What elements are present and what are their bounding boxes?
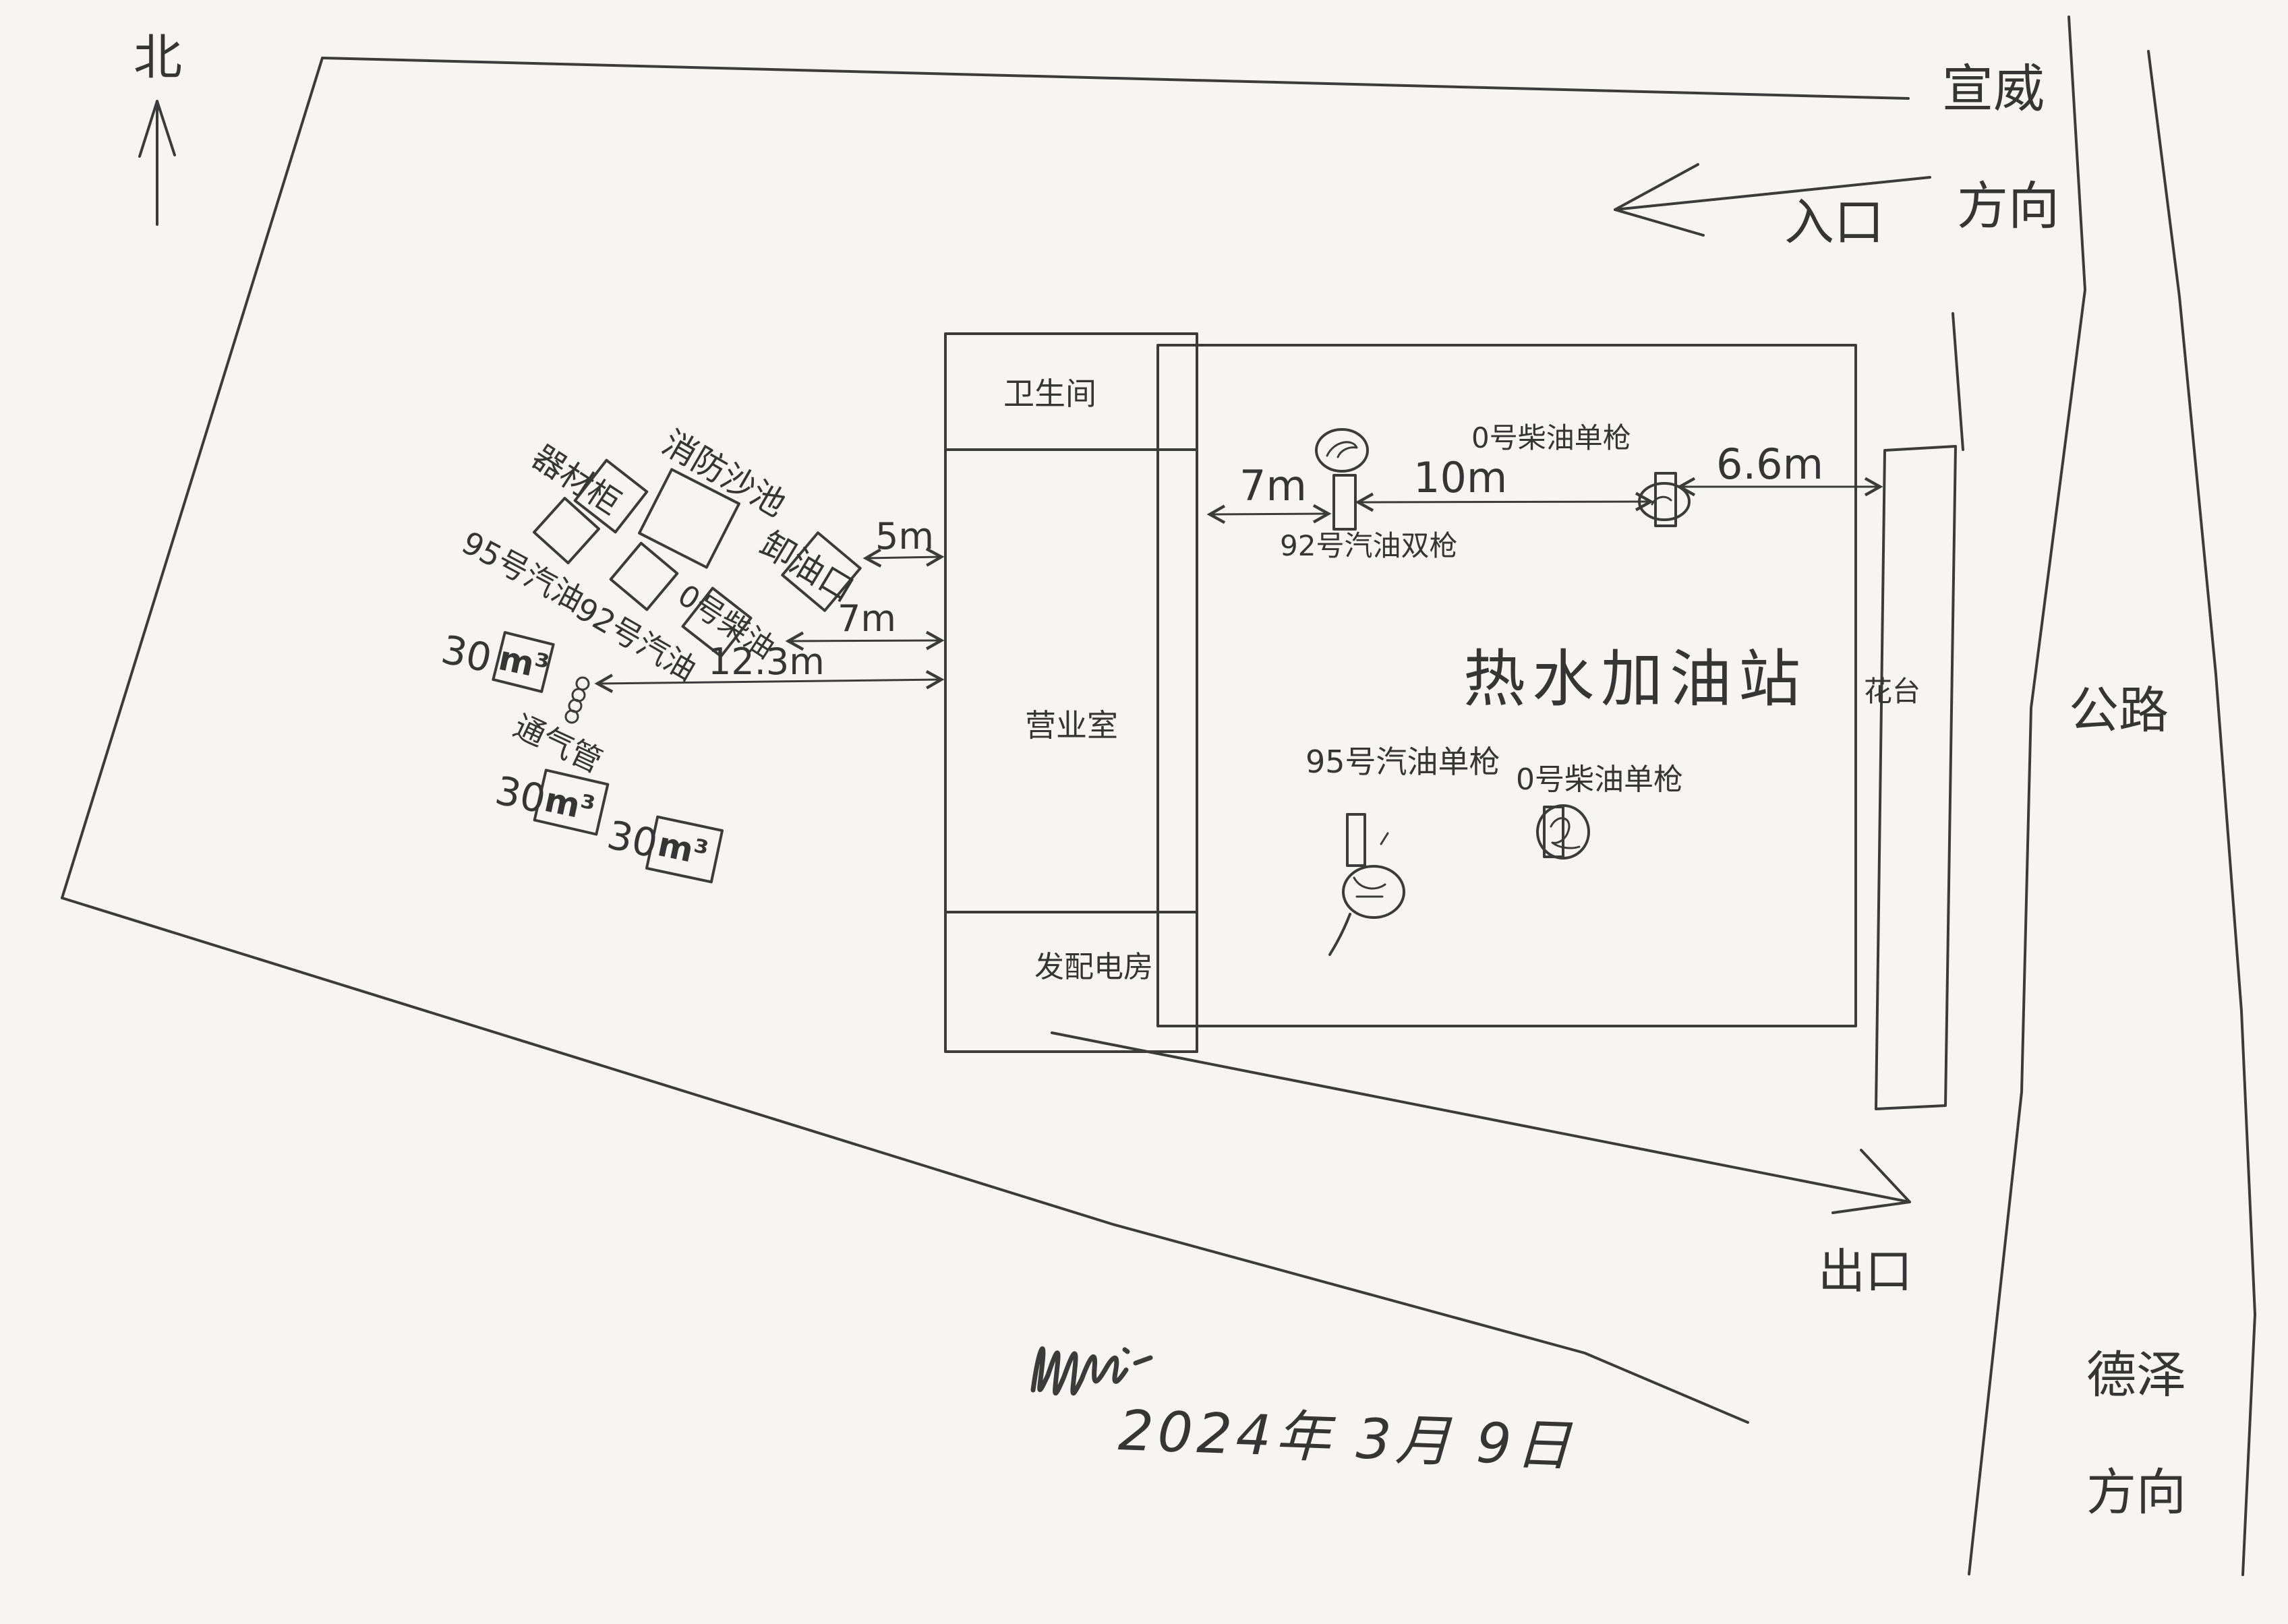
tank-volume-unit-1: m³ [496,640,552,686]
direction-xuanwei-line2: 方向 [1957,179,2059,233]
dim-7m-left-label: 7m [838,600,896,638]
dim-10m-label: 10m [1413,456,1507,500]
dim-7m-canopy-label: 7m [1239,464,1307,508]
property-boundary-east-fence [1953,313,1963,450]
exit-arrow [1052,1033,1910,1213]
tank-volume-1: 30 [438,629,495,680]
restroom-label: 卫生间 [1003,378,1096,410]
dispenser-0-diesel-bottom-label: 0号柴油单枪 [1516,764,1683,795]
road-label: 公路 [2069,685,2169,738]
flower-bed-rect [1876,446,1956,1109]
signature-scribble [1033,1349,1126,1393]
property-boundary-top [322,58,1908,98]
signature-dash [1125,1350,1150,1363]
direction-deze-line1: 德泽 [2086,1350,2186,1402]
scanned-site-plan: 北 宣威 方向 入口 出口 公路 德泽 方向 卫生间 营业室 发配电房 热水加油… [0,0,2288,1624]
office-label: 营业室 [1025,709,1118,742]
dim-arrow-7m-canopy [1210,514,1328,514]
power-room-label: 发配电房 [1034,952,1153,983]
dispenser-0-diesel-top-label: 0号柴油单枪 [1471,423,1631,453]
dispenser-0-diesel-top [1639,473,1689,526]
tank-volume-unit-2: m³ [541,782,597,827]
site-plan-drawing [0,0,2288,1624]
station-title: 热水加油站 [1463,647,1807,713]
direction-deze-line2: 方向 [2086,1467,2186,1520]
property-boundary-left [62,58,322,898]
dim-6-6m-label: 6.6m [1716,442,1823,486]
dispenser-95-single [1330,814,1404,955]
station-building [945,334,1197,1052]
vent-pipe-circles [566,678,589,723]
direction-xuanwei-line1: 宣威 [1942,62,2045,116]
dim-5m-label: 5m [875,518,934,556]
dispenser-92-double-label: 92号汽油双枪 [1280,531,1457,561]
tank-volume-3: 30 [604,814,661,865]
flower-bed-label: 花台 [1864,677,1920,706]
entrance-label: 入口 [1784,197,1884,249]
dispenser-95-single-label: 95号汽油单枪 [1306,746,1500,778]
tank-volume-unit-3: m³ [655,826,711,872]
date-handwritten: 2024年 3月 9日 [1117,1402,1576,1476]
road-west-edge [1969,17,2085,1574]
dim-12-3m-label: 12.3m [708,643,825,682]
tank-volume-2: 30 [492,770,549,820]
exit-label: 出口 [1818,1247,1912,1297]
dispenser-0-diesel-bottom [1537,806,1589,858]
north-label: 北 [134,32,182,84]
gas92-tank-box [611,543,678,610]
property-boundary-bottom [62,898,1748,1422]
north-arrow [140,101,175,224]
